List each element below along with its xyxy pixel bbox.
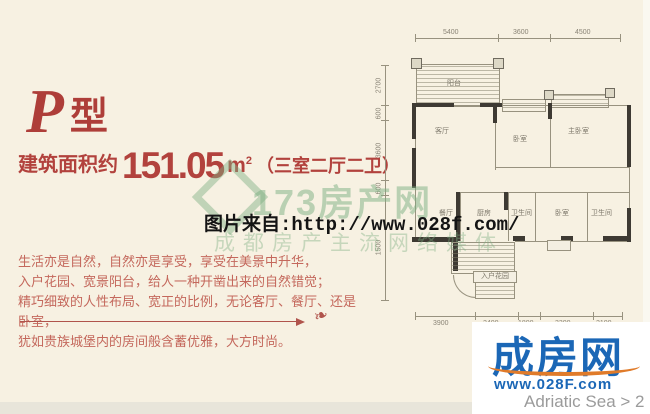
room-label-bedroom: 卧室 xyxy=(513,134,527,144)
dim-tick xyxy=(540,312,541,320)
column-post xyxy=(544,90,554,100)
wall-segment xyxy=(493,105,497,123)
wall-segment xyxy=(548,103,552,119)
dim-tick xyxy=(415,34,416,42)
room-label-balcony: 阳台 xyxy=(447,78,461,88)
dim-tick xyxy=(381,300,389,301)
room-label-master: 主卧室 xyxy=(568,126,589,136)
dim-tick xyxy=(475,312,476,320)
logo-swoosh-icon xyxy=(488,356,640,376)
wall-segment xyxy=(412,105,416,139)
wall-segment xyxy=(513,236,525,241)
area-value: 151.05 xyxy=(122,149,223,182)
wall xyxy=(460,192,630,193)
dim-label: 5400 xyxy=(443,29,459,36)
description-paragraph: 生活亦是自然，自然亦是享受，享受在美景中升华， 入户花园、宽景阳台，给人一种开凿… xyxy=(18,252,366,352)
site-url: www.028F.com xyxy=(494,376,612,393)
arrow-icon xyxy=(296,318,305,326)
wall xyxy=(495,167,630,168)
room-label-entry-garden: 入户花园 xyxy=(473,271,517,283)
decorative-rule xyxy=(20,321,298,322)
dim-tick xyxy=(415,312,416,320)
room-label-bedroom2: 卧室 xyxy=(555,208,569,218)
dim-tick xyxy=(622,312,623,320)
dim-tick xyxy=(593,312,594,320)
wall-segment xyxy=(603,236,631,241)
room-label-bath2: 卫生间 xyxy=(591,208,612,218)
unit-type-letter: P xyxy=(26,86,64,139)
column-post xyxy=(411,58,422,69)
dim-label: 3600 xyxy=(375,143,382,159)
description-line: 入户花园、宽景阳台，给人一种开凿出来的自然错觉； xyxy=(18,272,366,292)
dim-tick xyxy=(381,65,389,66)
site-logo-panel: 成房网 www.028F.com Adriatic Sea > 2 xyxy=(472,322,650,414)
wall-segment xyxy=(480,103,502,107)
area-prefix: 建筑面积约 xyxy=(18,148,118,182)
column-post xyxy=(605,88,615,98)
room-label-living: 客厅 xyxy=(435,126,449,136)
wall xyxy=(535,192,536,241)
wall xyxy=(587,192,588,241)
wall-segment xyxy=(412,103,454,107)
unit-type-title: P 型 xyxy=(26,86,108,139)
dim-tick xyxy=(620,34,621,42)
dim-tick xyxy=(518,312,519,320)
wall-segment xyxy=(504,192,508,210)
dim-tick xyxy=(498,34,499,42)
unit-type-suffix: 型 xyxy=(70,98,108,139)
dim-label: 2700 xyxy=(375,78,382,94)
dim-line xyxy=(415,38,620,39)
dim-tick xyxy=(550,34,551,42)
dim-label: 4500 xyxy=(575,29,591,36)
dim-label: 600 xyxy=(375,108,382,120)
dim-label: 3900 xyxy=(433,320,449,327)
wall xyxy=(515,241,630,242)
watermark-source-url: 图片来自:http://www.028f.com/ xyxy=(204,209,519,236)
site-caption: Adriatic Sea > 2 xyxy=(524,392,645,412)
column-post xyxy=(493,58,504,69)
description-line: 犹如贵族城堡内的房间般含蓄优雅，大方时尚。 xyxy=(18,332,366,352)
area-unit-sup: 2 xyxy=(246,155,252,167)
dim-label: 3600 xyxy=(513,29,529,36)
dim-tick xyxy=(381,105,389,106)
dim-tick xyxy=(381,120,389,121)
wall-segment xyxy=(627,105,631,167)
window-tag xyxy=(547,240,571,251)
